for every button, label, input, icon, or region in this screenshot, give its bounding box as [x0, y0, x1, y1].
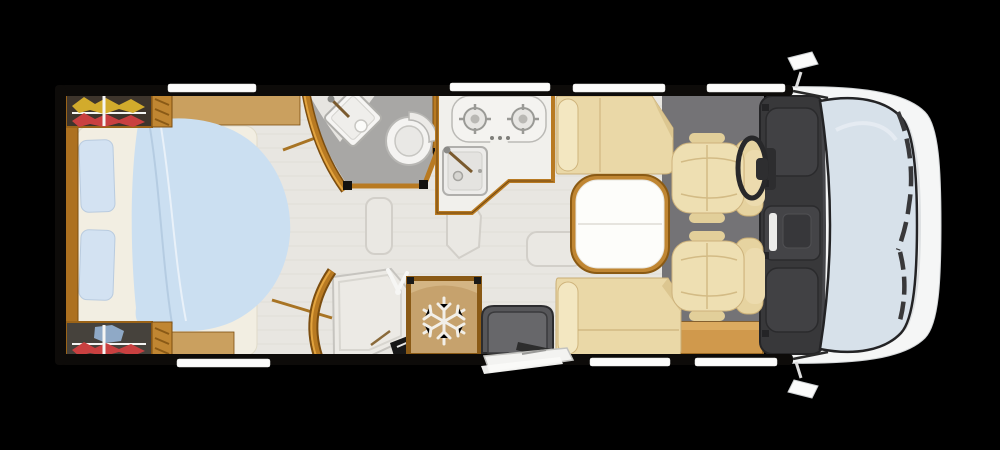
bench-seat-rear	[556, 96, 673, 174]
console-slot	[769, 213, 777, 251]
basin-tap-knob	[328, 96, 335, 103]
dashboard	[760, 96, 825, 354]
bench-backrest	[558, 99, 578, 171]
pillow	[79, 139, 115, 212]
floorplan-canvas	[0, 0, 1000, 450]
window-strip	[707, 84, 785, 92]
window-strip	[695, 358, 777, 366]
dash-lower-module	[766, 268, 818, 332]
armrest	[689, 133, 725, 143]
dinette	[553, 93, 681, 358]
sink-knob	[478, 169, 482, 173]
windshield-group	[820, 98, 917, 352]
corner-mark	[407, 277, 414, 284]
hob-knob	[490, 136, 494, 140]
sink-drain	[454, 172, 463, 181]
armrest	[689, 213, 725, 223]
floor-hatch-small	[366, 198, 392, 254]
driver-seat	[672, 133, 765, 223]
wall-rear	[55, 85, 66, 365]
seat-cushion	[672, 143, 744, 213]
sink-tap-base	[444, 147, 451, 154]
dinette-table	[571, 175, 669, 273]
floorplan-image	[0, 0, 1000, 450]
window-strip	[573, 84, 665, 92]
window-strip	[177, 359, 270, 367]
shower-head-nozzle	[395, 289, 401, 295]
armrest	[689, 311, 725, 321]
window-strip	[168, 84, 256, 92]
hob-knob	[506, 136, 510, 140]
bench-backrest	[558, 282, 578, 354]
cab-step-highlight	[678, 322, 763, 330]
pillow	[79, 229, 115, 300]
seat-cushion	[672, 241, 744, 311]
bedside-cabinet-bottom	[172, 332, 234, 357]
kitchen-sink	[443, 147, 487, 196]
console-tray	[783, 214, 811, 248]
window-strip	[450, 83, 550, 91]
rear-wood-band	[65, 93, 78, 357]
wall-top	[55, 85, 793, 96]
fridge	[406, 276, 482, 357]
wardrobe-bottom	[66, 322, 152, 358]
wardrobe-top	[66, 93, 152, 127]
armrest	[689, 231, 725, 241]
headrest	[745, 248, 765, 304]
door-gap	[419, 180, 428, 189]
basin-drain	[355, 120, 367, 132]
passenger-seat	[672, 231, 765, 321]
wall-bottom	[55, 354, 793, 365]
steering-hub	[756, 158, 768, 180]
door-gap	[343, 181, 352, 190]
window-strip	[590, 358, 670, 366]
corner-mark	[474, 277, 481, 284]
bench-seat-front	[556, 278, 681, 358]
hob-knob	[498, 136, 502, 140]
